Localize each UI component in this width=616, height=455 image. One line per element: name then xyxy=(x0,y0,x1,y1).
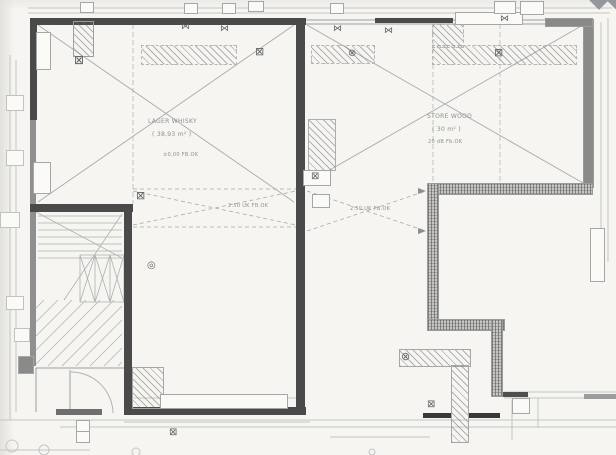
pier-marker xyxy=(184,3,198,14)
lintel-bar xyxy=(375,18,453,23)
column-hatch-central xyxy=(309,120,335,170)
pier-marker xyxy=(520,1,544,15)
ceiling-band-mid xyxy=(311,45,375,64)
wall-right-upper xyxy=(584,20,593,187)
wall-bottom-left xyxy=(56,409,102,415)
arrow-marker xyxy=(418,228,426,234)
wall-stair-right xyxy=(124,210,132,415)
meter-box xyxy=(76,431,90,443)
wall-top xyxy=(30,18,306,25)
drain-icon: ◎ xyxy=(147,261,156,271)
service-box xyxy=(512,398,530,414)
room-name-right: STORE WOOD xyxy=(427,113,472,120)
exterior-window xyxy=(14,328,30,342)
shaft-box-icon: ⊠ xyxy=(494,47,503,58)
room-note-left: ±0,00 FB.OK xyxy=(163,152,198,158)
room-note-right: 20 dB Fb.OK xyxy=(428,139,462,145)
pier-marker xyxy=(222,3,236,14)
shaft-box-icon: ⊠ xyxy=(136,190,145,201)
exterior-window xyxy=(6,296,24,310)
hatch-lower-stair xyxy=(34,300,122,366)
ceiling-band-left xyxy=(141,45,237,65)
sill-bar-left xyxy=(423,413,452,418)
vent-bowtie-icon: ⋈ xyxy=(181,23,190,32)
beam-note: 2.50 UK FB.OK xyxy=(350,206,390,212)
exterior-dark-box xyxy=(18,356,34,374)
wall-left-lower xyxy=(30,212,36,366)
shaft-box-icon: ⊠ xyxy=(255,46,264,57)
wall-top-right-seg xyxy=(546,19,592,26)
exterior-window xyxy=(6,150,24,166)
vent-bowtie-icon: ⋈ xyxy=(384,27,393,36)
shaft-box-icon: ⊠ xyxy=(74,54,84,66)
staircase xyxy=(36,212,124,302)
right-wall-niche xyxy=(590,228,605,282)
hatched-wall-top xyxy=(428,184,592,194)
pier-marker xyxy=(330,3,344,14)
room-name-left: LAGER WHISKY xyxy=(148,118,197,125)
wall-stair-top xyxy=(30,204,133,212)
exterior-window xyxy=(0,212,20,228)
pier-marker xyxy=(248,1,264,12)
beam-note: 2.50 UK FB.OK xyxy=(228,203,268,209)
pier-marker xyxy=(494,1,516,14)
ceiling-block-right xyxy=(432,24,464,48)
hatch-strip-bottom-right xyxy=(452,366,468,442)
column-box xyxy=(312,194,330,208)
fan-circle-icon: ⊗ xyxy=(401,351,410,362)
shaft-box-icon: ⊠ xyxy=(311,172,319,182)
shaft-box-icon: ⊠ xyxy=(169,428,177,438)
hatch-square-bottom-left xyxy=(133,368,163,408)
workbench-outline xyxy=(160,394,288,409)
shaft-box-icon: ⊠ xyxy=(427,400,435,410)
fan-circle-icon: ⊗ xyxy=(348,49,356,59)
room-area-right: ( 30 m² ) xyxy=(432,126,461,133)
vent-bowtie-icon: ⋈ xyxy=(220,25,229,34)
ceiling-band-right xyxy=(432,45,577,65)
bar-step-bottom xyxy=(500,392,528,397)
bar-right-edge xyxy=(584,394,616,399)
door-room-walls xyxy=(36,368,130,413)
hatch-band-bottom xyxy=(400,350,470,366)
sill-bar-right xyxy=(468,413,500,418)
pier-marker xyxy=(80,2,94,13)
wall-niche xyxy=(36,32,51,70)
wall-niche xyxy=(33,162,51,194)
arrow-marker xyxy=(418,188,426,194)
vent-bowtie-icon: ⋈ xyxy=(333,25,342,34)
linework-layer xyxy=(0,0,616,455)
wall-central xyxy=(296,18,305,415)
vent-bowtie-icon: ⋈ xyxy=(500,15,509,24)
exterior-outline xyxy=(0,8,616,455)
exterior-window xyxy=(6,95,24,111)
hatched-wall-step-v xyxy=(492,320,502,396)
floor-plan-scan: ⋈ ⋈ ⋈ ⋈ ⋈ ⊠ ⊠ ⊠ ⊠ ⊠ ⊠ ⊠ ⊗ ⊗ ◎ LAGER WHIS… xyxy=(0,0,616,455)
hatched-wall-vert xyxy=(428,184,438,330)
chimney-hatch xyxy=(74,22,93,56)
room-area-left: ( 38,93 m² ) xyxy=(152,131,191,138)
